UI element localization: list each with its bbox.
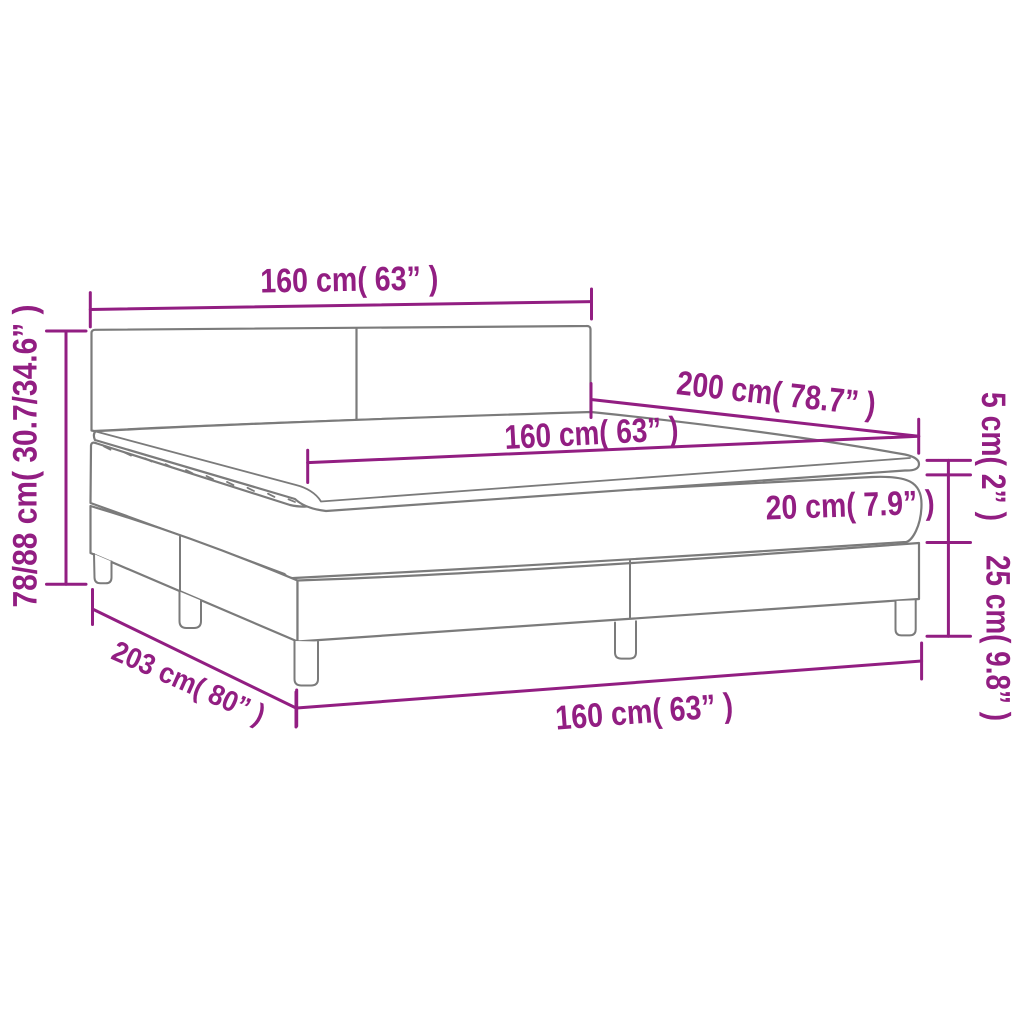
svg-text:25 cm( 9.8” ): 25 cm( 9.8” ) [979,555,1017,721]
svg-text:78/88 cm( 30.7/34.6” ): 78/88 cm( 30.7/34.6” ) [7,305,45,608]
svg-text:160 cm( 63” ): 160 cm( 63” ) [554,686,734,737]
svg-text:200 cm( 78.7” ): 200 cm( 78.7” ) [675,364,878,424]
svg-text:160 cm( 63” ): 160 cm( 63” ) [260,259,439,300]
svg-text:5 cm( 2” ): 5 cm( 2” ) [974,392,1012,521]
svg-text:20 cm( 7.9” ): 20 cm( 7.9” ) [765,484,935,528]
